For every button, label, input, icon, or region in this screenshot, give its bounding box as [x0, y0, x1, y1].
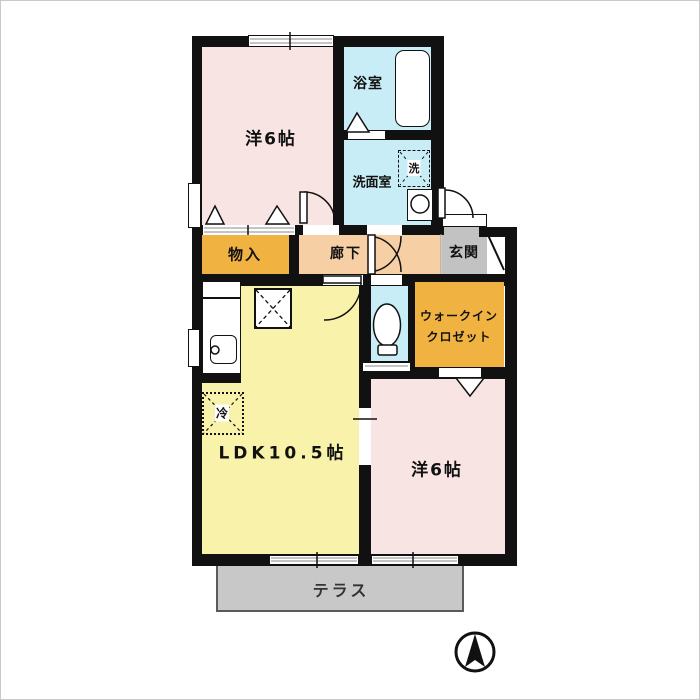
room-toilet — [371, 284, 408, 361]
closet-door-threshold — [438, 367, 482, 378]
label-storage: 物入 — [228, 244, 262, 265]
floorplan-canvas: 洋6帖 浴室 洗面室 洗 物入 廊下 玄関 ウォークイン クロゼット LDK10… — [0, 0, 700, 700]
window — [188, 183, 201, 228]
wall — [408, 274, 415, 367]
window — [188, 329, 200, 367]
kitchen-stub-wall — [192, 373, 241, 383]
bathtub — [395, 50, 430, 127]
label-bedroom-bottom: 洋6帖 — [411, 456, 463, 481]
label-washroom: 洗面室 — [352, 172, 391, 191]
label-bedroom-top: 洋6帖 — [245, 125, 297, 150]
wall — [192, 36, 202, 566]
closet-opening — [203, 225, 295, 235]
washbasin — [407, 189, 433, 221]
kitchen-sink — [210, 335, 237, 364]
wall — [333, 36, 344, 234]
door-opening — [323, 275, 363, 285]
stove-hatch — [254, 288, 292, 329]
door-opening — [371, 275, 402, 285]
window — [269, 555, 359, 565]
label-fridge: 冷 — [215, 405, 229, 422]
label-terrace: テラス — [313, 577, 370, 601]
north-compass-icon — [456, 633, 494, 671]
label-hallway: 廊下 — [330, 243, 362, 263]
label-washer: 洗 — [408, 160, 421, 176]
door-opening — [303, 225, 339, 235]
label-ldk: LDK10.5帖 — [218, 439, 347, 464]
label-bath: 浴室 — [353, 73, 383, 93]
room-hallway — [299, 234, 441, 274]
label-entrance: 玄関 — [449, 242, 479, 262]
label-wic: ウォークイン クロゼット — [420, 306, 498, 348]
label-wic-line1: ウォークイン — [420, 306, 498, 327]
wall — [505, 227, 517, 566]
entrance-diagonal — [488, 235, 504, 270]
door-opening — [367, 225, 402, 235]
window — [363, 363, 410, 371]
label-wic-line2: クロゼット — [420, 327, 498, 348]
wall-opening — [359, 408, 371, 465]
door-opening — [348, 131, 385, 139]
counter-divider — [203, 297, 240, 299]
window — [248, 35, 334, 47]
entrance-threshold — [442, 214, 487, 227]
window — [371, 555, 459, 565]
